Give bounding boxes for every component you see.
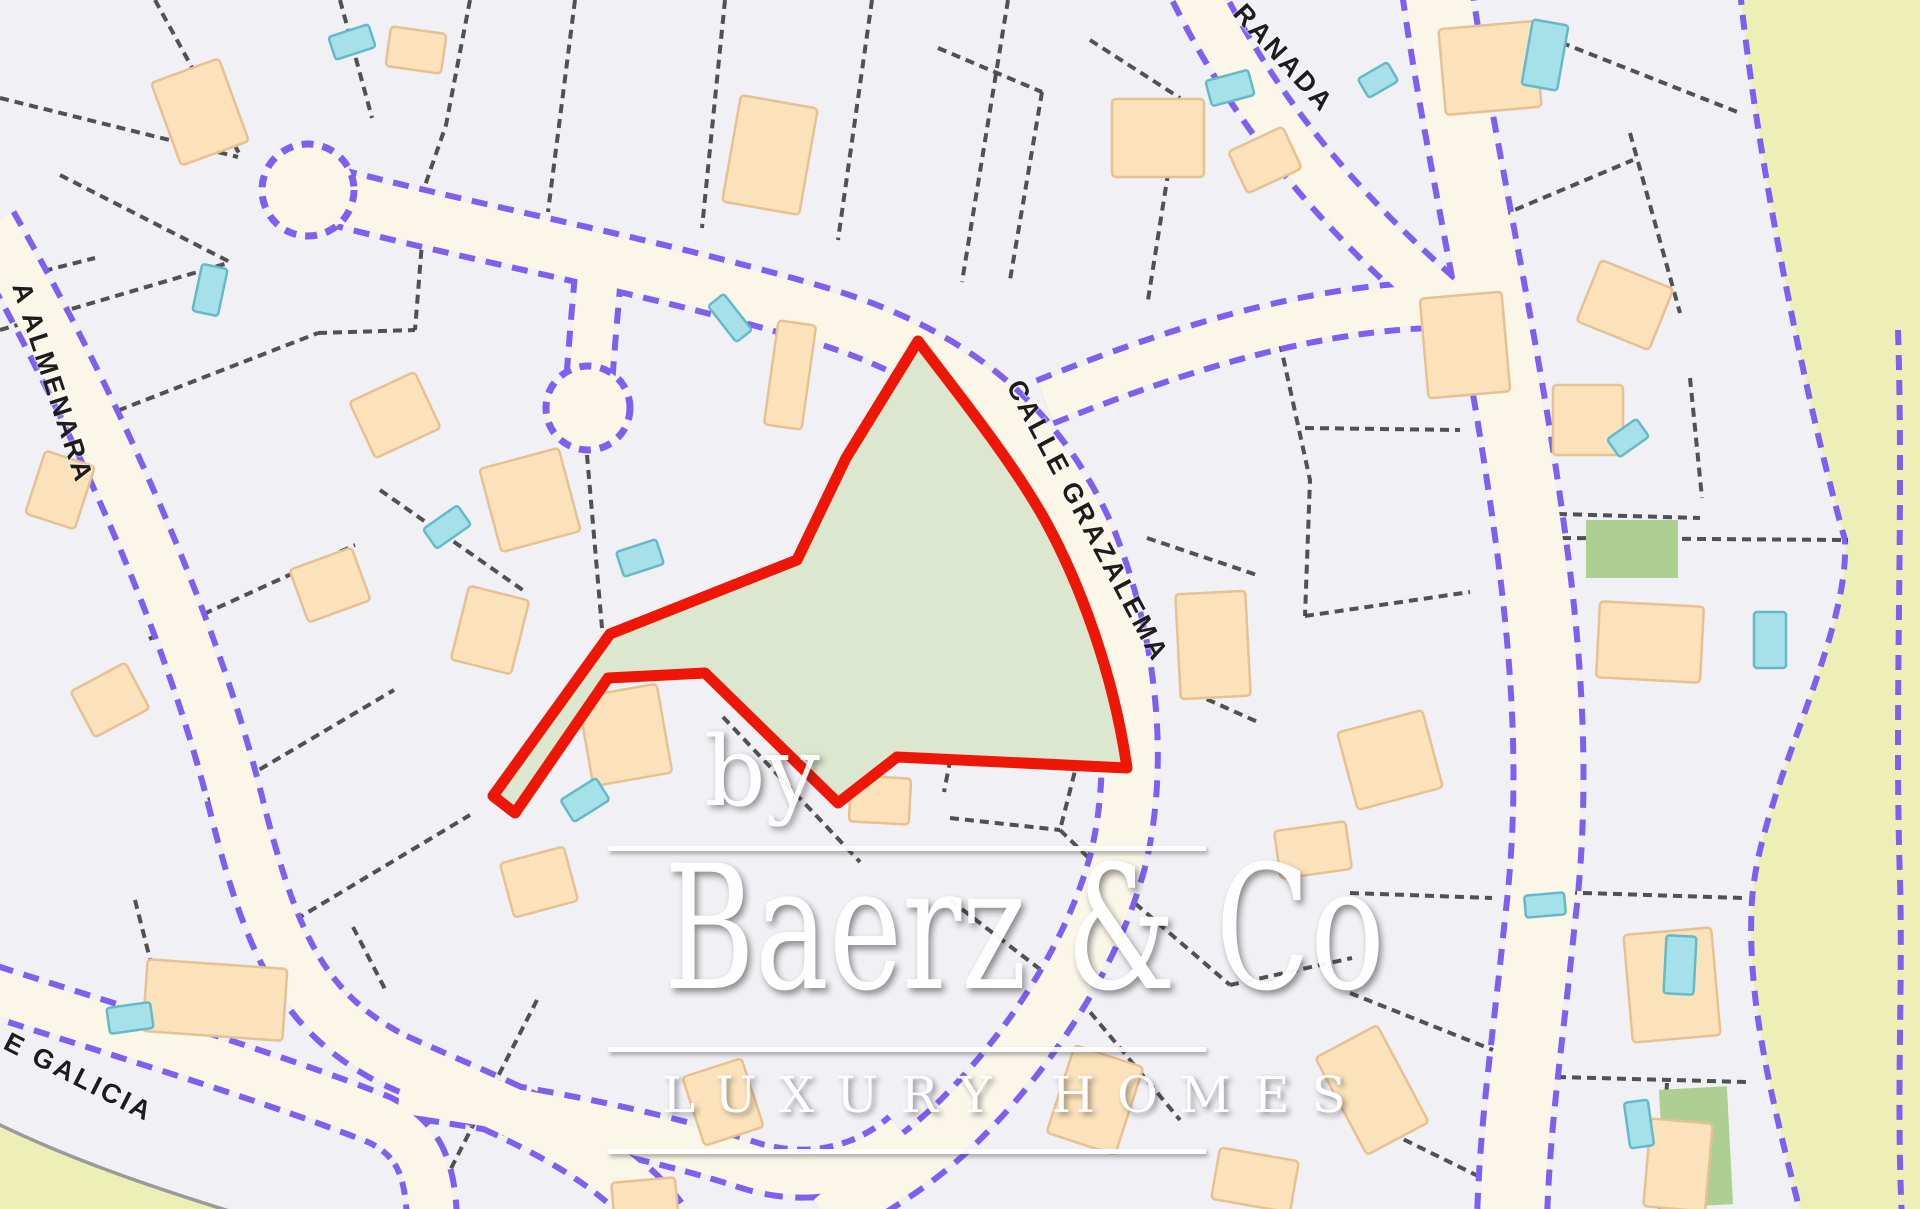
parcel-boundary-line [1350, 893, 1492, 898]
swimming-pool [423, 505, 471, 549]
parcel-boundary-line [1280, 343, 1310, 616]
parcel-boundary-line [548, 0, 575, 212]
parcel-boundary-line [587, 455, 602, 628]
cadastral-map: CALLE GRAZALEMA RANADA A ALMENARA E GALI… [0, 0, 1920, 1209]
building [1274, 821, 1352, 879]
parcel-boundary-line [962, 0, 1008, 282]
building [479, 448, 580, 552]
road-ring [1437, 0, 1549, 1209]
swimming-pool [1624, 1100, 1654, 1149]
parcel-boundary-line [318, 330, 415, 333]
building [1420, 292, 1510, 399]
building [1211, 1147, 1299, 1209]
building [500, 846, 578, 917]
parcel-boundary-line [1090, 40, 1180, 98]
parcel-boundary-line [950, 818, 1060, 830]
parcel-boundary-line [104, 333, 318, 416]
culdesac-bulb-west [262, 144, 354, 236]
swimming-pool [1358, 62, 1398, 98]
parcel-boundary-line [1147, 538, 1257, 575]
parcel-boundary-line [1547, 37, 1740, 113]
culdesac-layer [262, 144, 630, 450]
parcel-boundary-line [1305, 428, 1460, 430]
building [1643, 1118, 1712, 1209]
parcel-boundary-line [353, 927, 387, 993]
building [385, 26, 446, 73]
building [1175, 591, 1250, 700]
parcel-boundary-line [938, 48, 1042, 92]
parcel-boundary-line [702, 0, 725, 228]
map-canvas: CALLE GRAZALEMA RANADA A ALMENARA E GALI… [0, 0, 1920, 1209]
parcel-boundary-line [1690, 378, 1702, 498]
building [764, 320, 816, 429]
terrain-southwest [0, 1120, 255, 1209]
building [611, 1177, 679, 1209]
building [1315, 1025, 1428, 1155]
parcel-boundary-line [838, 0, 872, 240]
parcel-boundary-line [340, 0, 372, 118]
building [151, 58, 249, 165]
building [1596, 601, 1704, 682]
swimming-pool [1524, 892, 1566, 917]
swimming-pool [192, 264, 227, 316]
parcel-boundary-line [1230, 958, 1352, 985]
road-branch [1045, 305, 1430, 402]
building [1337, 710, 1443, 810]
building [289, 547, 370, 622]
building [349, 372, 440, 459]
building [1576, 260, 1673, 350]
culdesac-bulb-center [546, 366, 630, 450]
parcel-boundary-line [1558, 514, 1700, 518]
road-connector [400, 1092, 905, 1174]
parcel-boundary-line [1305, 592, 1470, 616]
swimming-pool [1754, 612, 1786, 668]
green-parcel [1586, 520, 1678, 578]
parcel-boundary-line [420, 0, 470, 200]
swimming-pool [106, 1002, 153, 1034]
building [1112, 99, 1204, 177]
parcel-boundary-line [60, 175, 230, 262]
parcel-boundary-line [1010, 92, 1042, 280]
swimming-pool [1664, 935, 1697, 994]
terrain-east [1740, 0, 1920, 1209]
parcel-boundary-line [1553, 892, 1743, 898]
building [451, 586, 530, 675]
swimming-pool [616, 539, 664, 577]
building [143, 959, 288, 1041]
swimming-pool [328, 24, 375, 60]
building [70, 662, 149, 737]
building [722, 95, 818, 215]
building [1047, 1045, 1144, 1155]
parcel-boundary-line [1557, 1077, 1747, 1082]
